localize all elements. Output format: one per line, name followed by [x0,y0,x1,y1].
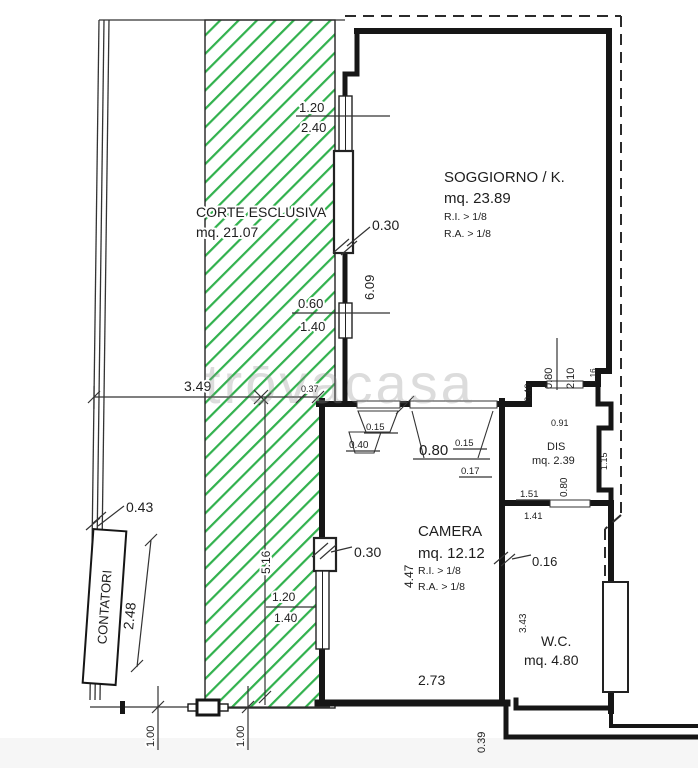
dim-cam-width: 2.73 [418,672,445,688]
label-corte: CORTE ESCLUSIVA [196,204,327,220]
soggiorno-interior [338,25,612,391]
dim-fence-right: 1.00 [235,726,247,747]
dim-fence-left: 1.00 [145,726,157,747]
window-wc-bay [603,582,628,692]
dim-mid-window-lower: 1.40 [300,319,325,334]
label-camera-ra: R.A. > 1/8 [418,581,465,593]
dim-dis-door-width: 0.80 [543,368,555,389]
dim-meter-length: 2.48 [120,601,139,630]
dim-pass-upper: 1.51 [520,489,539,500]
label-camera-ri: R.I. > 1/8 [418,565,461,577]
label-soggiorno-ra: R.A. > 1/8 [444,228,491,240]
wc-interior [504,504,612,708]
label-wc: W.C. [541,633,571,649]
dim-mid-window-upper: 0.60 [298,296,323,311]
dim-cam-door-b-lower: 0.17 [461,466,480,477]
label-soggiorno-ri: R.I. > 1/8 [444,211,487,223]
fence-post [120,701,125,714]
dim-cam-wall: 0.16 [532,554,557,569]
dim-wc-depth: 3.43 [518,613,529,633]
dim-top-window-lower: 2.40 [301,120,326,135]
dim-cam-door-a-upper: 0.15 [366,422,385,433]
dim-dis-notch: 1.16 [589,368,598,384]
dim-step-depth: 0.39 [476,732,488,753]
watermark: trōvacasa [205,352,475,415]
dim-top-window-upper: 1.20 [299,100,324,115]
dim-pass-lower: 1.41 [524,511,543,522]
dim-cam-window-upper: 1.20 [272,590,296,604]
dim-dis-width: 0.91 [551,418,569,428]
dim-sog-depth: 6.09 [362,275,377,300]
label-soggiorno: SOGGIORNO / K. [444,169,565,186]
label-dis-area: mq. 2.39 [532,455,575,467]
dim-meter-offset: 0.43 [126,499,153,515]
floor-plan: CONTATORI CORTE ESCLUSIVA mq. 21.07 SOGG… [0,0,698,768]
dim-cam-door-b-upper: 0.15 [455,438,474,449]
label-camera: CAMERA [418,523,482,540]
dim-dis-step: 0.40 [523,384,534,403]
gate [197,700,219,715]
label-camera-area: mq. 12.12 [418,545,485,562]
dim-court-depth: 5.16 [259,550,273,574]
label-soggiorno-area: mq. 23.89 [444,190,511,207]
dim-cam-window-lower: 1.40 [274,611,298,625]
dim-dis-door-height: 2.10 [565,368,577,389]
dim-cam-door-b-width: 0.80 [419,442,448,459]
dim-wc-door-width: 0.80 [559,477,570,497]
label-dis: DIS [547,441,565,453]
wall-pillar-soggiorno [334,151,353,253]
dim-sog-wall: 0.30 [372,217,399,233]
label-wc-area: mq. 4.80 [524,652,579,668]
dim-dis-side: 1.15 [599,452,609,470]
dim-cam-wall-2: 0.30 [354,544,381,560]
dim-cam-depth: 4.47 [402,564,416,588]
photo-edge-shade [0,738,698,768]
door-dis-wc [550,500,590,507]
label-corte-area: mq. 21.07 [196,224,258,240]
floor-plan-page: CONTATORI CORTE ESCLUSIVA mq. 21.07 SOGG… [0,0,698,768]
dim-cam-door-a-lower: 0.40 [349,440,369,451]
